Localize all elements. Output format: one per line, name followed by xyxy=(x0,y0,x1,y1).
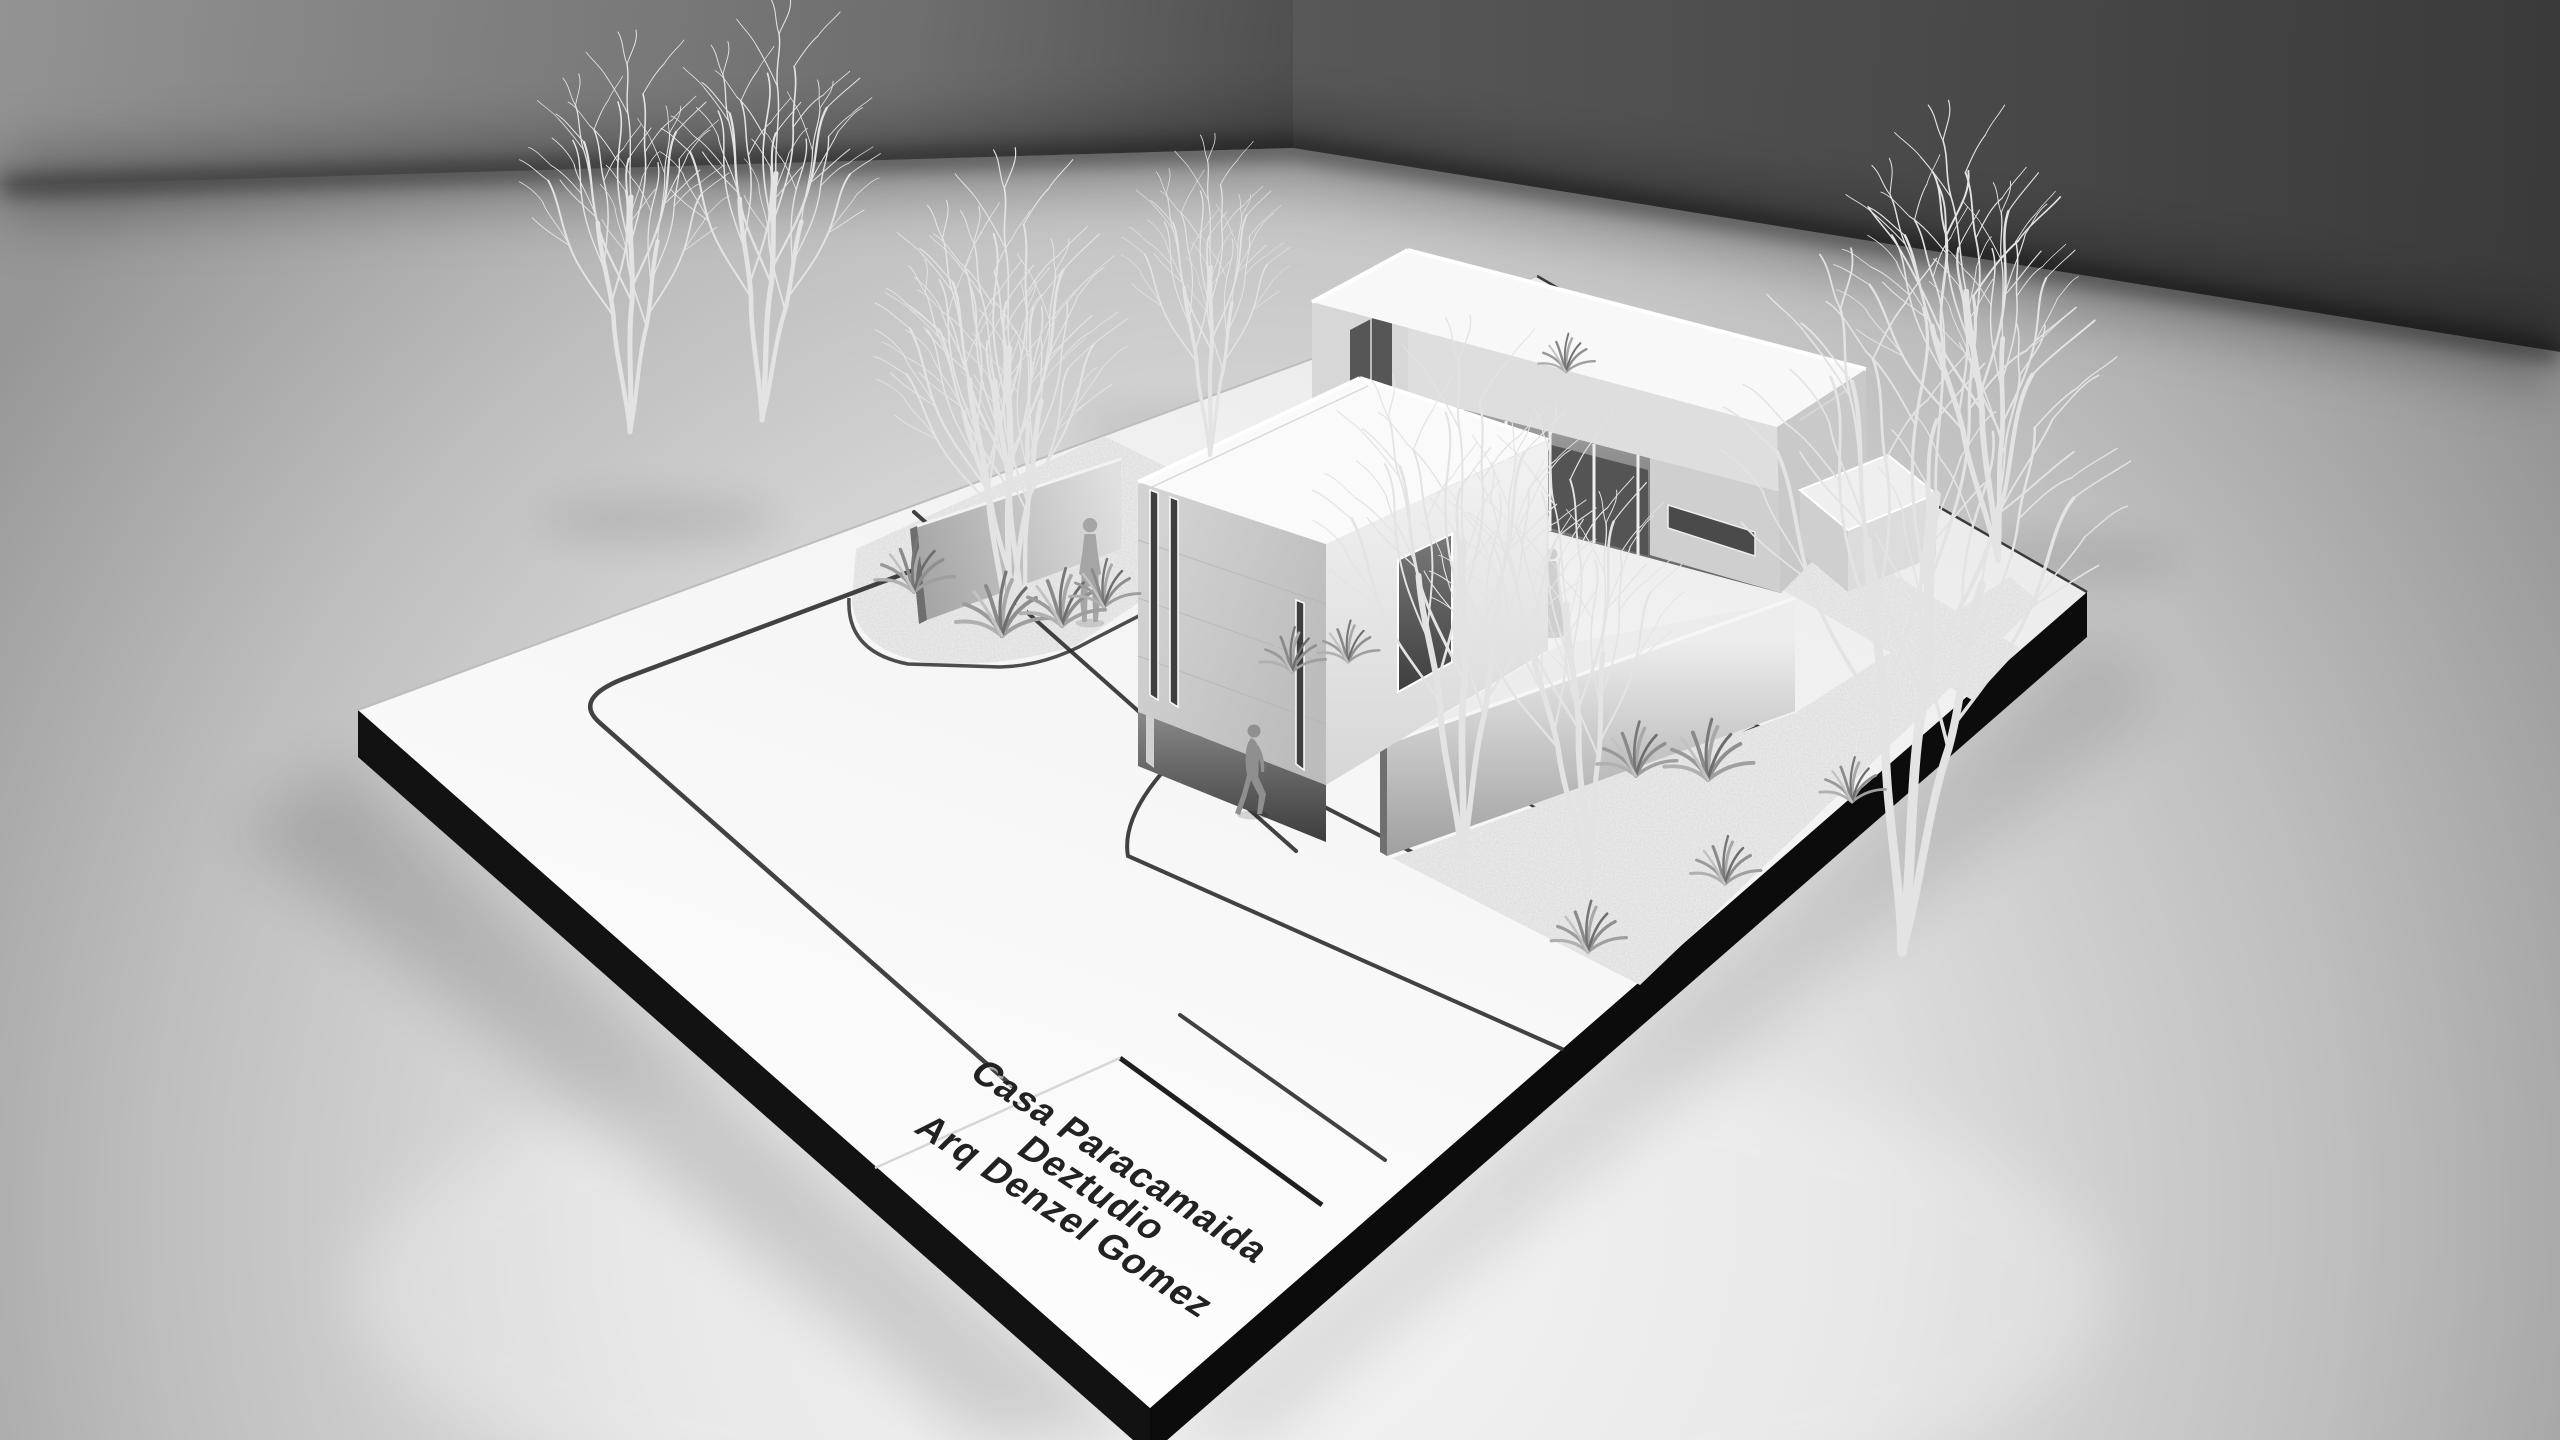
render-viewport: Casa Paracamaida Deztudio Arq Denzel Gom… xyxy=(0,0,2560,1440)
garden-wall-end xyxy=(1380,743,1387,856)
architectural-model-render: Casa Paracamaida Deztudio Arq Denzel Gom… xyxy=(0,0,2560,1440)
carport-pillar xyxy=(1146,714,1154,768)
